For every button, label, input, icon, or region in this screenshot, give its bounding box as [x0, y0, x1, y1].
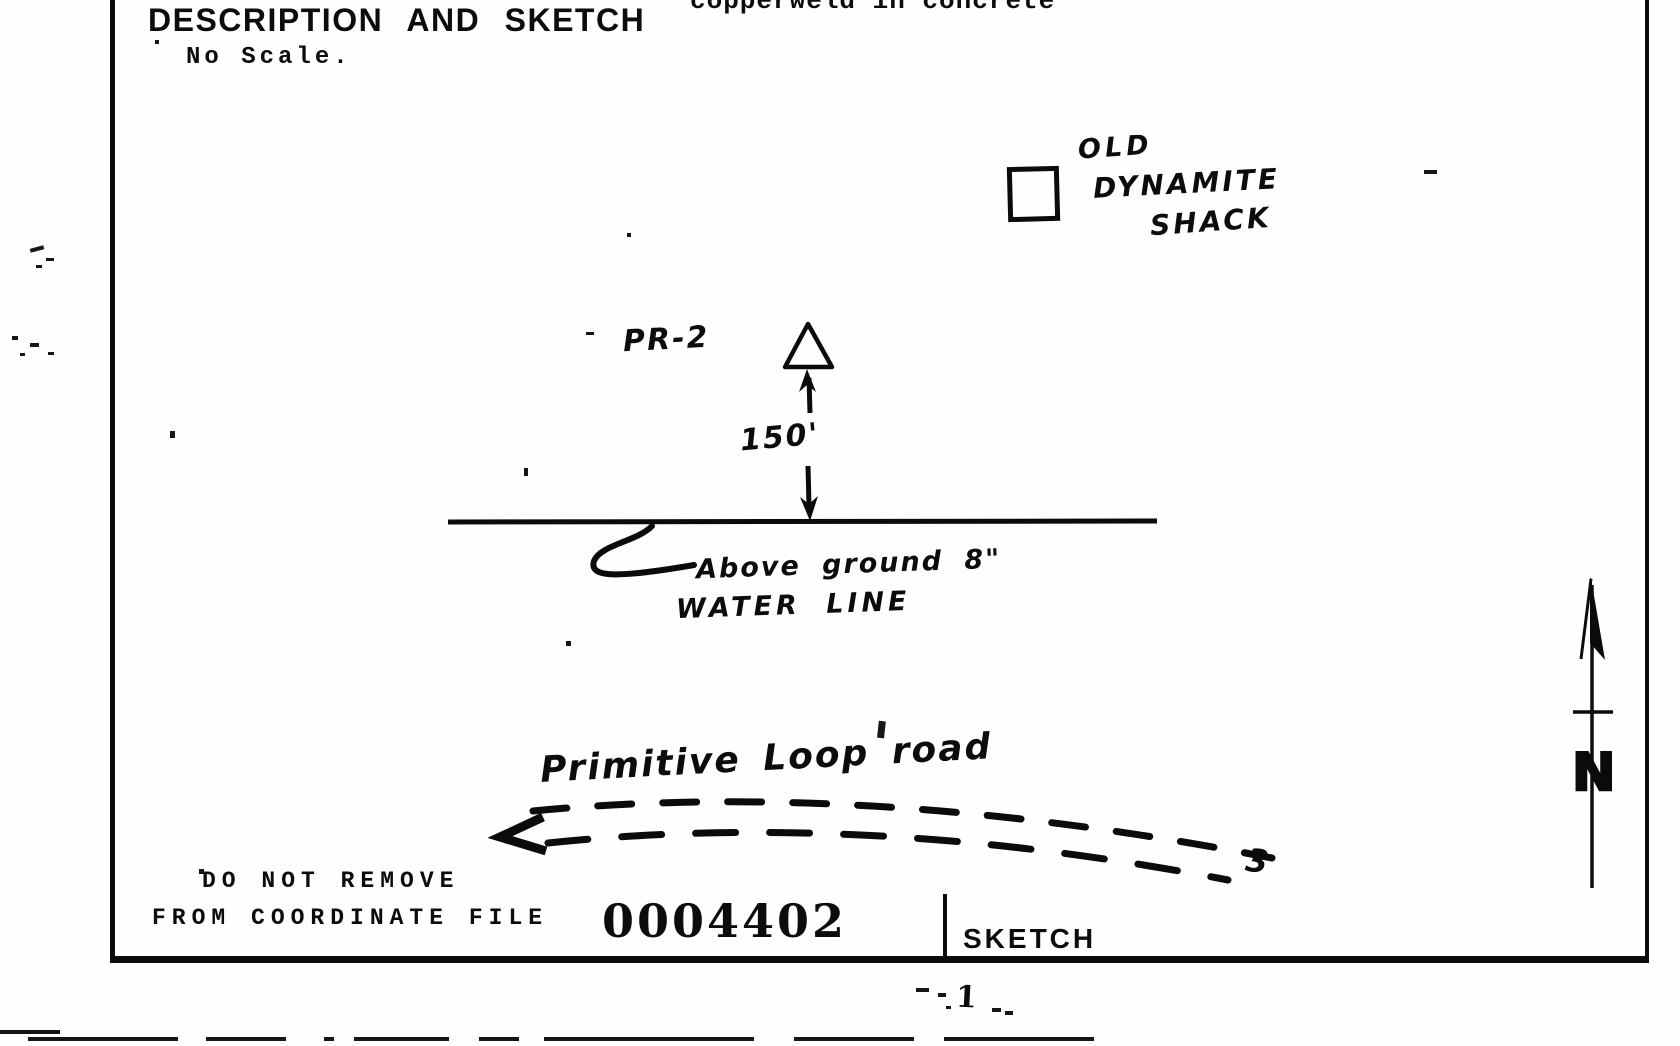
station-label: PR-2 [622, 320, 710, 359]
distance-arrow-up [799, 369, 816, 413]
water-line-leader-curl [593, 526, 694, 574]
station-triangle-symbol [785, 324, 832, 367]
box-border-bottom [110, 956, 1649, 963]
page-title: DESCRIPTION AND SKETCH [148, 2, 645, 39]
page-number: 1 [955, 979, 978, 1015]
water-line-label-line2: WATER LINE [676, 586, 911, 625]
scan-artifact-line [0, 1032, 1120, 1039]
file-number: 0004402 [602, 894, 847, 948]
document-scan: copperweld in concrete DESCRIPTION AND S… [0, 0, 1680, 1046]
shack-label-line1: OLD [1077, 129, 1154, 165]
top-note-cutoff: copperweld in concrete [690, 0, 1055, 16]
road-dashed-line-lower [548, 832, 1228, 880]
water-line-label-line1: Above ground 8" [696, 544, 1002, 586]
stamp-line2: FROM COORDINATE FILE [152, 905, 548, 931]
distance-arrow-down [800, 466, 818, 521]
box-border-right [1645, 0, 1649, 962]
road-label: Primitive Loop road [539, 726, 993, 791]
scale-note: No Scale. [186, 44, 352, 71]
water-line [448, 521, 1157, 522]
road-dashed-line-upper [533, 802, 1272, 858]
shack-square-symbol [1009, 168, 1057, 219]
shack-label-line2: DYNAMITE [1092, 162, 1280, 205]
box-border-left [110, 0, 115, 962]
north-arrow: N [1572, 578, 1616, 888]
road-end-label: 3 [1243, 841, 1270, 882]
footer-cell-divider [943, 894, 947, 957]
distance-label: 150' [739, 417, 822, 459]
road-arrowhead [500, 817, 546, 851]
shack-label-line3: SHACK [1149, 201, 1273, 242]
north-letter: N [1572, 743, 1616, 803]
stamp-line1: DO NOT REMOVE [202, 868, 459, 894]
sketch-section-label: SKETCH [963, 923, 1096, 955]
